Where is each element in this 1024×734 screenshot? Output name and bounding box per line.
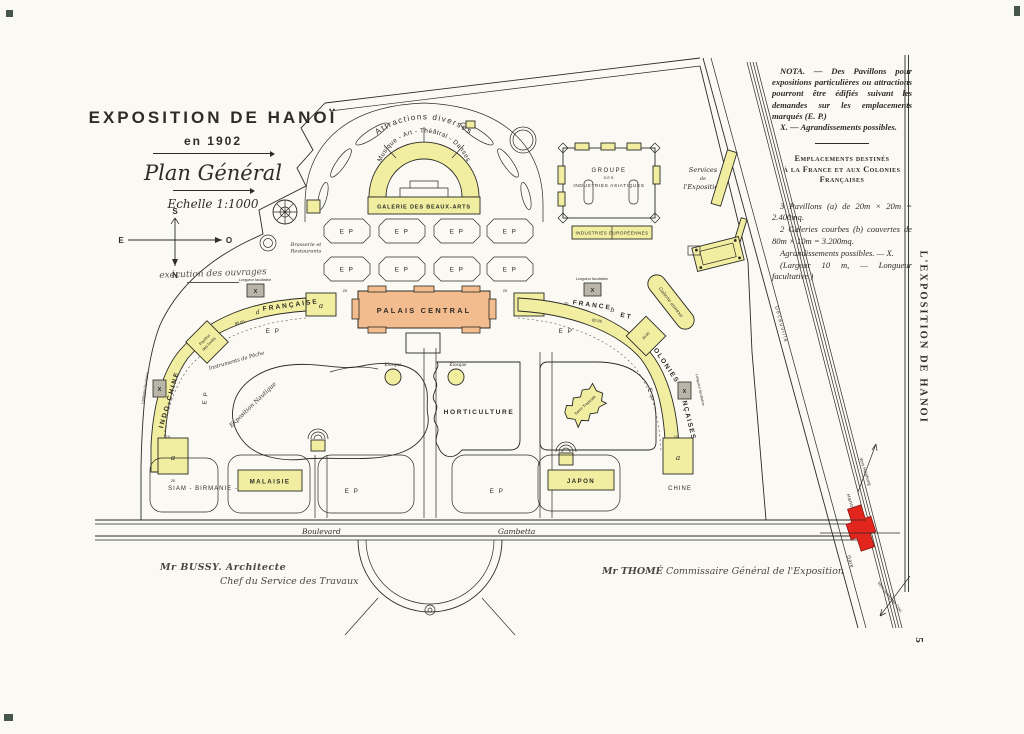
ep-label: E P <box>266 328 281 335</box>
dim-label: 20 <box>343 288 348 293</box>
lakeside-bandstand <box>556 442 576 465</box>
groupe-label: GROUPE <box>591 168 626 174</box>
ep-label: E P <box>202 391 210 405</box>
vers-pont-label: Vers (pont) de Cou. <box>876 581 903 614</box>
pavilion-a-label: a <box>171 453 175 462</box>
japon-label: JAPON <box>567 478 595 485</box>
dim-label: 20 <box>171 478 176 483</box>
x-label: X <box>254 289 258 295</box>
gare-group: Gare Hanoï Vers Haïphong Vers (pont) de … <box>820 444 910 616</box>
title-rule <box>153 153 273 154</box>
beaux-arts-label: GALERIE DES BEAUX-ARTS <box>377 205 471 211</box>
commissaire-name: Mr THOMÉ <box>602 566 663 577</box>
kiosque-label: Kiosque <box>384 362 403 367</box>
siam-birmanie-label: SIAM - BIRMANIE - <box>168 486 238 492</box>
hanoi-label: Hanoï <box>845 493 856 510</box>
ep-label: E P <box>395 229 410 236</box>
spec-agrandissements: Agrandissements possibles. — X. <box>772 248 912 259</box>
pavilion-a-label: a <box>319 301 323 310</box>
emplacements-line-1: Emplacements destinés <box>772 154 912 165</box>
industries-europeennes-label: INDUSTRIES EUROPÉENNES <box>575 230 648 236</box>
groupe-label-2: DES <box>604 176 615 180</box>
malaisie-label: MALAISIE <box>250 479 291 486</box>
ep-label: E P <box>503 267 518 274</box>
nota-paragraph-2: X. — Agrandissements possibles. <box>772 122 912 133</box>
map-title: EXPOSITION DE HANOÏ <box>88 108 338 128</box>
x-label: X <box>591 288 595 294</box>
map-year: en 1902 <box>88 134 338 148</box>
ep-label: E P <box>503 229 518 236</box>
kiosque <box>448 369 464 385</box>
attractions-complex: GALERIE DES BEAUX-ARTS Attractions diver… <box>305 103 543 222</box>
spec-pavillons: 3 Pavillons (a) de 20m × 20m = 2.400mq. <box>772 201 912 223</box>
plan-general-title: Plan Général <box>88 161 338 185</box>
handwritten-underline <box>187 282 239 283</box>
longueur-label: Longueur facultative <box>695 374 706 406</box>
spec-largeur: (Largeur 10 m, — Longueur facultative.) <box>772 260 912 282</box>
spec-galeries: 2 Galeries courbes (b) couvertes de 80m … <box>772 224 912 246</box>
handwritten-note: exécution des ouvrages <box>88 265 338 284</box>
dim-label: 20 <box>503 288 508 293</box>
palais-central: PALAIS CENTRAL <box>352 286 496 353</box>
scale-label: Echelle 1:1000 <box>88 197 338 211</box>
serre-plot: Serre Tropicale <box>540 362 656 450</box>
serre-tropicale: Serre Tropicale <box>560 381 610 430</box>
architect-title: Chef du Service des Travaux <box>220 576 358 587</box>
palais-central-label: PALAIS CENTRAL <box>377 306 472 315</box>
lake-bandstand <box>308 429 328 451</box>
page-number: 5 <box>913 637 925 643</box>
horticulture-label: HORTICULTURE <box>444 409 515 416</box>
title-block: EXPOSITION DE HANOÏ en 1902 Plan Général… <box>88 108 338 283</box>
round-plot <box>510 127 536 153</box>
dim-b: b <box>610 306 615 315</box>
longueur-label: Longueur facultative <box>576 277 608 281</box>
horticulture-plot: HORTICULTURE Kiosque Kiosque <box>384 362 521 457</box>
south-plots: SIAM - BIRMANIE - MALAISIE E P E P JAPON… <box>150 455 692 513</box>
pavilion-a-label: a <box>676 453 680 462</box>
services-label-2: de <box>700 176 706 182</box>
gare-building <box>842 503 880 553</box>
commissaire-title: Commissaire Général de l'Exposition <box>666 566 844 577</box>
signature-architect: Mr BUSSY. Architecte Chef du Service des… <box>160 562 358 587</box>
nota-block: NOTA. — Des Pavillons pour expositions p… <box>772 66 912 282</box>
ep-label: E P <box>340 267 355 274</box>
nota-paragraph: NOTA. — Des Pavillons pour expositions p… <box>772 66 912 122</box>
ep-label: E P <box>340 229 355 236</box>
vers-haiphong-label: Vers Haïphong <box>859 457 873 487</box>
nota-divider <box>815 143 869 144</box>
industries-asiatiques-block: GROUPE DES INDUSTRIES ASIATIQUES INDUSTR… <box>558 143 660 239</box>
dim-label: 80.00 <box>234 319 246 326</box>
kiosque-label: Kiosque <box>449 362 468 367</box>
services-exposition: Services de l'Exposition <box>683 150 747 272</box>
et-label: ET <box>619 312 633 322</box>
plan-general-page: Decauville GALE <box>0 0 1024 734</box>
chine-label: CHINE <box>668 486 692 492</box>
ep-label: E P <box>395 267 410 274</box>
signature-commissaire: Mr THOMÉ Commissaire Général de l'Exposi… <box>602 566 844 577</box>
ep-label: E P <box>559 328 574 335</box>
side-title: L'EXPOSITION DE HANOI <box>918 251 929 381</box>
x-label: X <box>158 387 162 393</box>
ep-label: E P <box>345 488 360 495</box>
gare-label: Gare <box>845 555 855 569</box>
longueur-label: Longueur facultative <box>140 372 150 405</box>
ep-label: E P <box>450 229 465 236</box>
boulevard-label: Boulevard <box>301 527 341 536</box>
kiosque <box>385 369 401 385</box>
services-label: Services <box>689 166 718 174</box>
emplacements-line-2: à la France et aux Colonies Françaises <box>772 165 912 186</box>
ep-label: E P <box>490 488 505 495</box>
gambetta-label: Gambetta <box>498 527 535 536</box>
round-plot <box>513 130 533 150</box>
architect-name: Mr BUSSY. Architecte <box>160 562 358 573</box>
x-label: X <box>683 389 687 395</box>
groupe-label-3: INDUSTRIES ASIATIQUES <box>573 183 644 189</box>
title-rule <box>173 190 253 191</box>
exposition-nautique-label: Exposition Nautique <box>227 380 278 429</box>
galerie-indochine: FRANÇAISE INDO-CHINE d d 80.00 10 Pavill… <box>140 278 319 483</box>
ep-label: E P <box>450 267 465 274</box>
